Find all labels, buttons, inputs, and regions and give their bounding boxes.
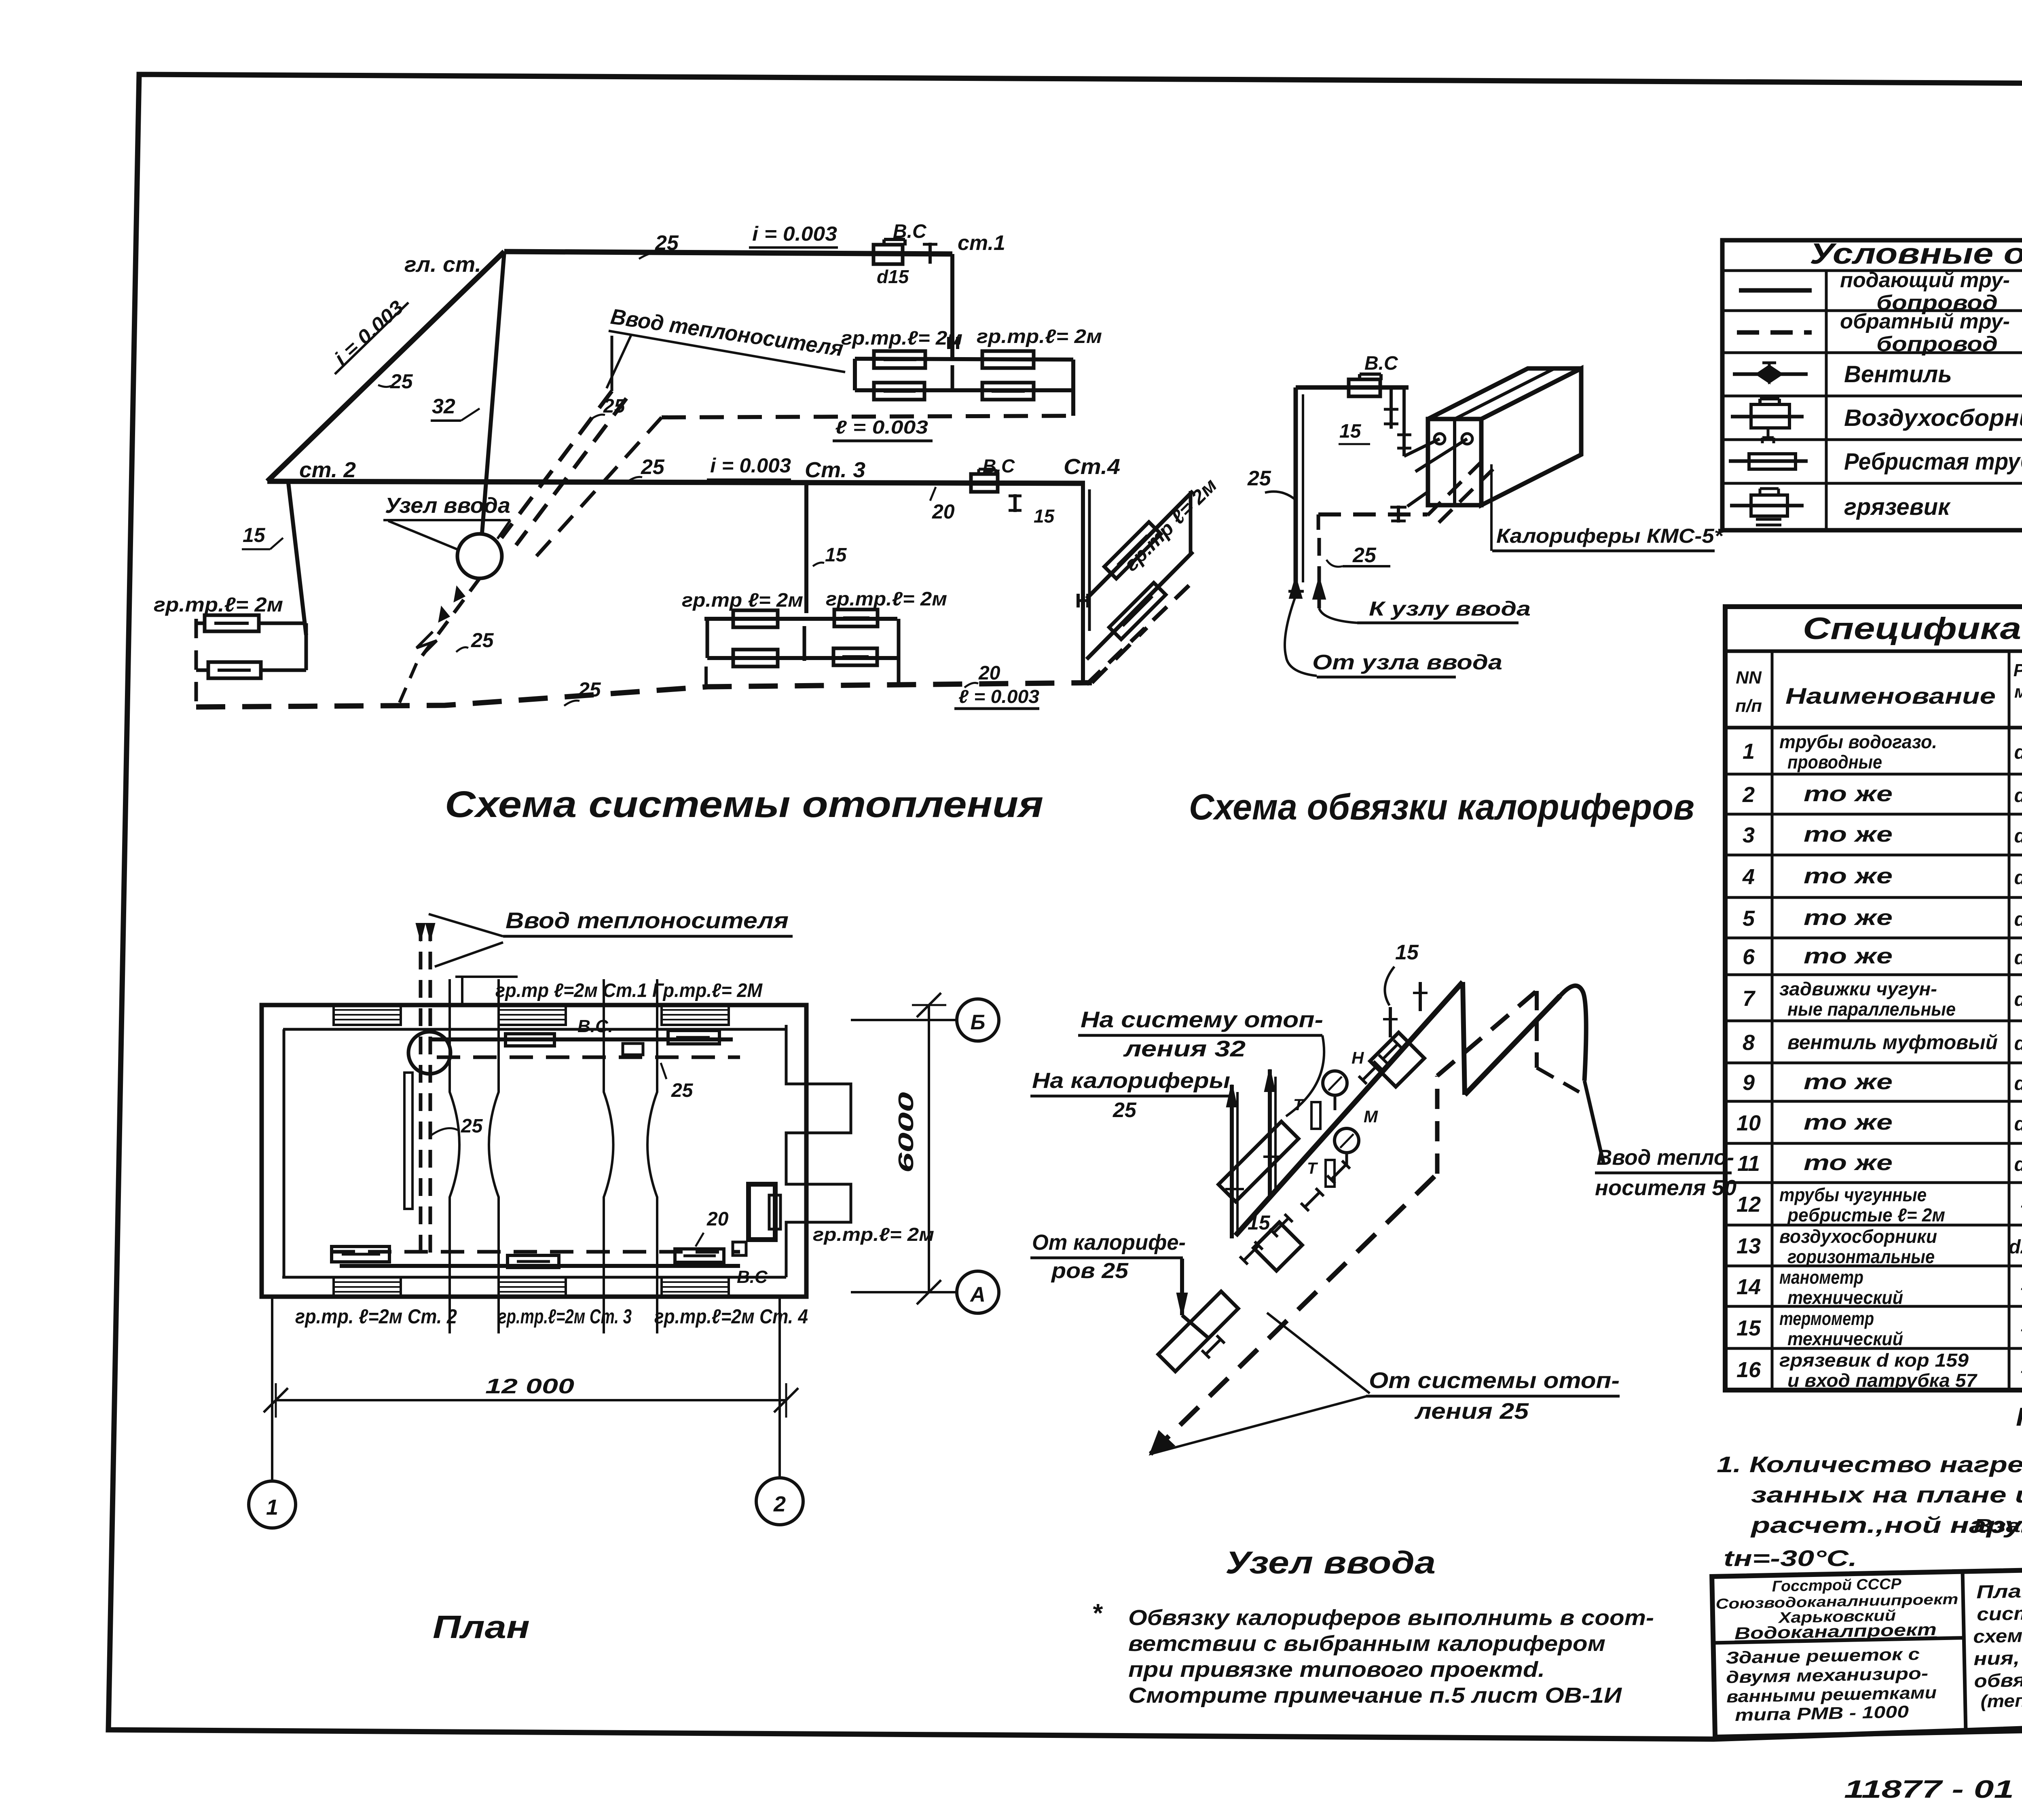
svg-text:ребристые ℓ= 2м: ребристые ℓ= 2м bbox=[1787, 1204, 1945, 1225]
svg-text:горизонтальные: горизонтальные bbox=[1787, 1246, 1935, 1267]
svg-text:От системы отоп-: От системы отоп- bbox=[1369, 1367, 1620, 1393]
svg-text:подающий тру-: подающий тру- bbox=[1840, 269, 2010, 292]
svg-text:d40: d40 bbox=[2014, 909, 2022, 930]
svg-text:М: М bbox=[1364, 1107, 1378, 1126]
svg-text:гр.тр.ℓ= 2м: гр.тр.ℓ= 2м bbox=[826, 588, 947, 610]
svg-text:Т: Т bbox=[1293, 1096, 1305, 1114]
svg-text:гр.тр.ℓ= 2м: гр.тр.ℓ= 2м bbox=[154, 593, 283, 616]
svg-text:d50: d50 bbox=[2014, 1033, 2022, 1054]
svg-text:Обвязку калориферов выполнить: Обвязку калориферов выполнить в соот- bbox=[1128, 1606, 1654, 1630]
svg-text:бопровод: бопровод bbox=[1876, 332, 1998, 356]
svg-text:проводные: проводные bbox=[1787, 751, 1882, 772]
svg-text:Ввод тепло-: Ввод тепло- bbox=[1597, 1145, 1734, 1170]
svg-text:d213: d213 bbox=[2009, 1236, 2022, 1258]
svg-text:5: 5 bbox=[1743, 906, 1755, 931]
svg-text:20: 20 bbox=[978, 662, 1000, 684]
svg-text:На систему отоп-: На систему отоп- bbox=[1081, 1007, 1323, 1032]
svg-text:На калориферы: На калориферы bbox=[1032, 1069, 1230, 1093]
svg-text:то же: то же bbox=[1804, 1070, 1893, 1094]
svg-text:задвижки чугун-: задвижки чугун- bbox=[1779, 978, 1937, 999]
svg-text:Н: Н bbox=[1352, 1048, 1364, 1067]
svg-text:Ребристая труба: Ребристая труба bbox=[1844, 449, 2022, 475]
svg-text:и вход патрубка 57: и вход патрубка 57 bbox=[1787, 1370, 1978, 1391]
svg-text:25: 25 bbox=[471, 629, 494, 652]
svg-text:технический: технический bbox=[1787, 1328, 1903, 1349]
svg-text:Т: Т bbox=[1307, 1160, 1318, 1177]
svg-text:15: 15 bbox=[825, 544, 847, 566]
svg-text:грязевик d кор 159: грязевик d кор 159 bbox=[1779, 1350, 1969, 1371]
svg-text:гр.тр ℓ=2м Ст.1 Гр.тр.ℓ= 2М: гр.тр ℓ=2м Ст.1 Гр.тр.ℓ= 2М bbox=[495, 980, 763, 1001]
svg-text:Взамен: Взамен bbox=[1973, 1515, 2022, 1536]
svg-text:От узла ввода: От узла ввода bbox=[1312, 651, 1502, 674]
svg-text:гр.тр.ℓ=2м Ст. 3: гр.тр.ℓ=2м Ст. 3 bbox=[498, 1305, 632, 1328]
svg-text:Схема системы отопления: Схема системы отопления bbox=[445, 784, 1043, 825]
svg-text:Б: Б bbox=[971, 1011, 986, 1034]
svg-text:гр.тр.ℓ=2м Ст. 4: гр.тр.ℓ=2м Ст. 4 bbox=[654, 1305, 808, 1328]
svg-text:Калориферы КМС-5*: Калориферы КМС-5* bbox=[1496, 525, 1724, 547]
svg-text:20: 20 bbox=[706, 1208, 729, 1230]
svg-text:25: 25 bbox=[671, 1080, 694, 1101]
svg-text:то же: то же bbox=[1804, 944, 1893, 968]
svg-text:мер: мер bbox=[2014, 682, 2022, 702]
svg-text:15: 15 bbox=[1034, 506, 1055, 527]
svg-text:Смотрите примечание п.5 лист О: Смотрите примечание п.5 лист ОВ-1И bbox=[1128, 1683, 1622, 1708]
svg-text:при привязке типового проектd.: при привязке типового проектd. bbox=[1128, 1657, 1545, 1682]
svg-text:гр.тр.ℓ= 2м: гр.тр.ℓ= 2м bbox=[977, 326, 1102, 347]
svg-text:10: 10 bbox=[1736, 1111, 1761, 1135]
svg-text:Ст.4: Ст.4 bbox=[1064, 455, 1120, 479]
svg-text:25: 25 bbox=[390, 370, 413, 393]
svg-text:гл. ст.: гл. ст. bbox=[404, 252, 481, 277]
svg-text:ст. 2: ст. 2 bbox=[299, 458, 356, 482]
svg-text:16: 16 bbox=[1736, 1358, 1761, 1382]
svg-text:обратный тру-: обратный тру- bbox=[1840, 310, 2010, 333]
svg-text:d50: d50 bbox=[2014, 989, 2022, 1010]
svg-text:то же: то же bbox=[1804, 1151, 1893, 1175]
svg-text:15: 15 bbox=[1395, 941, 1419, 964]
svg-text:1. Количество нагревательных п: 1. Количество нагревательных прибиров, у… bbox=[1717, 1452, 2022, 1477]
svg-text:Здание решеток с: Здание решеток с bbox=[1726, 1644, 1920, 1668]
svg-text:12: 12 bbox=[1736, 1192, 1761, 1217]
svg-text:занных на плане и схеме соотве: занных на плане и схеме соответствует bbox=[1751, 1482, 2022, 1507]
svg-text:Схема обвязки калориферов: Схема обвязки калориферов bbox=[1189, 787, 1694, 827]
svg-text:15: 15 bbox=[243, 524, 266, 546]
svg-text:25: 25 bbox=[655, 231, 679, 255]
svg-text:Примечания :: Примечания : bbox=[2016, 1402, 2022, 1431]
svg-text:8: 8 bbox=[1743, 1031, 1755, 1055]
svg-text:15: 15 bbox=[1339, 421, 1362, 442]
svg-text:Вентиль: Вентиль bbox=[1844, 361, 1952, 387]
svg-text:*: * bbox=[1092, 1598, 1103, 1627]
svg-text:ные параллельные: ные параллельные bbox=[1787, 999, 1956, 1020]
svg-text:Ст. 3: Ст. 3 bbox=[805, 458, 865, 482]
svg-text:25: 25 bbox=[1247, 467, 1271, 490]
svg-text:Наименование: Наименование bbox=[1785, 683, 1996, 709]
svg-text:d32: d32 bbox=[2014, 867, 2022, 889]
svg-text:вентиль муфтовый: вентиль муфтовый bbox=[1787, 1031, 1998, 1054]
svg-text:технический: технический bbox=[1787, 1287, 1903, 1308]
svg-text:типа РМВ - 1000: типа РМВ - 1000 bbox=[1735, 1702, 1909, 1725]
svg-text:В.С: В.С bbox=[737, 1267, 768, 1287]
svg-text:d15: d15 bbox=[2014, 742, 2022, 763]
svg-text:2: 2 bbox=[1742, 783, 1755, 807]
svg-text:то же: то же bbox=[1804, 822, 1893, 847]
svg-text:d20: d20 bbox=[2014, 785, 2022, 806]
svg-text:то же: то же bbox=[1804, 782, 1893, 806]
svg-text:6: 6 bbox=[1743, 945, 1755, 969]
svg-text:трубы водогазо.: трубы водогазо. bbox=[1779, 731, 1937, 752]
svg-text:15: 15 bbox=[1248, 1211, 1271, 1234]
svg-text:манометр: манометр bbox=[1779, 1267, 1863, 1288]
svg-text:п/п: п/п bbox=[1735, 696, 1762, 716]
svg-text:tн=-30°С.: tн=-30°С. bbox=[1724, 1545, 1857, 1571]
svg-text:Спецификация материалов: Спецификация материалов bbox=[1803, 612, 2022, 646]
svg-text:Узел ввода: Узел ввода bbox=[385, 493, 510, 518]
svg-text:План: План bbox=[433, 1609, 530, 1645]
svg-text:ления 25: ления 25 bbox=[1414, 1398, 1529, 1424]
svg-text:15: 15 bbox=[1736, 1316, 1761, 1340]
svg-text:носителя 50: носителя 50 bbox=[1595, 1176, 1736, 1200]
svg-text:Раз.: Раз. bbox=[2014, 660, 2022, 680]
svg-text:d20: d20 bbox=[2014, 1073, 2022, 1094]
svg-text:От калорифе-: От калорифе- bbox=[1032, 1230, 1186, 1255]
svg-text:воздухосборники: воздухосборники bbox=[1779, 1226, 1937, 1247]
svg-text:Воздухосборник: Воздухосборник bbox=[1844, 405, 2022, 431]
svg-text:20: 20 bbox=[932, 500, 955, 523]
svg-text:Водоканалпроект: Водоканалпроект bbox=[1734, 1620, 1937, 1643]
svg-text:гр.тр ℓ= 2м: гр.тр ℓ= 2м bbox=[682, 590, 803, 611]
svg-text:25: 25 bbox=[578, 678, 601, 701]
svg-text:гр.тр.ℓ= 2м: гр.тр.ℓ= 2м bbox=[841, 328, 962, 349]
svg-text:1: 1 bbox=[1743, 739, 1755, 764]
svg-text:В.С: В.С bbox=[1364, 353, 1398, 374]
svg-text:d32: d32 bbox=[2014, 1154, 2022, 1175]
svg-text:13: 13 bbox=[1736, 1234, 1761, 1258]
svg-text:7: 7 bbox=[1743, 986, 1756, 1011]
svg-text:12 000: 12 000 bbox=[485, 1375, 574, 1398]
svg-text:NN: NN bbox=[1736, 668, 1762, 688]
svg-text:В.С.: В.С. bbox=[577, 1016, 613, 1036]
svg-text:двумя механизиро-: двумя механизиро- bbox=[1726, 1663, 1929, 1687]
svg-text:Условные обозначения: Условные обозначения bbox=[1810, 238, 2022, 270]
svg-text:ров 25: ров 25 bbox=[1051, 1259, 1129, 1283]
svg-text:Ввод теплоносителя: Ввод теплоносителя bbox=[505, 908, 789, 933]
svg-text:ветствии с выбранным калорифер: ветствии с выбранным калорифером bbox=[1128, 1632, 1605, 1656]
svg-text:ℓ = 0.003: ℓ = 0.003 bbox=[835, 417, 928, 438]
svg-text:d15: d15 bbox=[877, 266, 909, 287]
svg-text:25: 25 bbox=[461, 1115, 483, 1137]
svg-text:11: 11 bbox=[1737, 1151, 1760, 1176]
svg-text:Узел ввода: Узел ввода bbox=[1225, 1545, 1436, 1580]
svg-text:25: 25 bbox=[603, 396, 626, 417]
svg-text:то же: то же bbox=[1804, 864, 1893, 888]
svg-text:К узлу ввода: К узлу ввода bbox=[1369, 597, 1531, 620]
svg-text:d25: d25 bbox=[2014, 1113, 2022, 1135]
svg-text:25: 25 bbox=[1113, 1098, 1137, 1122]
svg-text:то же: то же bbox=[1804, 1110, 1893, 1134]
svg-text:i = 0.003: i = 0.003 bbox=[710, 454, 791, 477]
svg-text:А: А bbox=[969, 1283, 986, 1306]
svg-text:грязевик: грязевик bbox=[1844, 494, 1951, 520]
svg-text:i = 0.003: i = 0.003 bbox=[752, 222, 837, 245]
svg-text:d25: d25 bbox=[2014, 825, 2022, 847]
svg-text:3: 3 bbox=[1743, 823, 1755, 847]
svg-text:6000: 6000 bbox=[895, 1092, 918, 1173]
svg-text:термометр: термометр bbox=[1779, 1308, 1874, 1329]
svg-text:32: 32 bbox=[432, 395, 455, 418]
svg-text:1: 1 bbox=[266, 1495, 278, 1519]
svg-text:2: 2 bbox=[773, 1492, 786, 1516]
svg-text:ℓ = 0.003: ℓ = 0.003 bbox=[958, 686, 1039, 707]
svg-text:трубы чугунные: трубы чугунные bbox=[1779, 1184, 1927, 1205]
svg-text:ления 32: ления 32 bbox=[1123, 1036, 1246, 1061]
svg-text:d50: d50 bbox=[2014, 947, 2022, 969]
svg-text:25: 25 bbox=[1352, 544, 1377, 567]
svg-text:14: 14 bbox=[1736, 1275, 1761, 1299]
svg-text:то же: то же bbox=[1804, 906, 1893, 930]
svg-text:9: 9 bbox=[1743, 1071, 1755, 1095]
svg-text:гр.тр. ℓ=2м Ст. 2: гр.тр. ℓ=2м Ст. 2 bbox=[295, 1305, 457, 1328]
svg-text:25: 25 bbox=[641, 455, 665, 479]
svg-text:ст.1: ст.1 bbox=[958, 231, 1005, 255]
svg-text:гр.тр.ℓ= 2м: гр.тр.ℓ= 2м bbox=[813, 1224, 934, 1245]
svg-text:11877 - 01: 11877 - 01 bbox=[1844, 1776, 2014, 1803]
svg-text:4: 4 bbox=[1742, 865, 1755, 889]
